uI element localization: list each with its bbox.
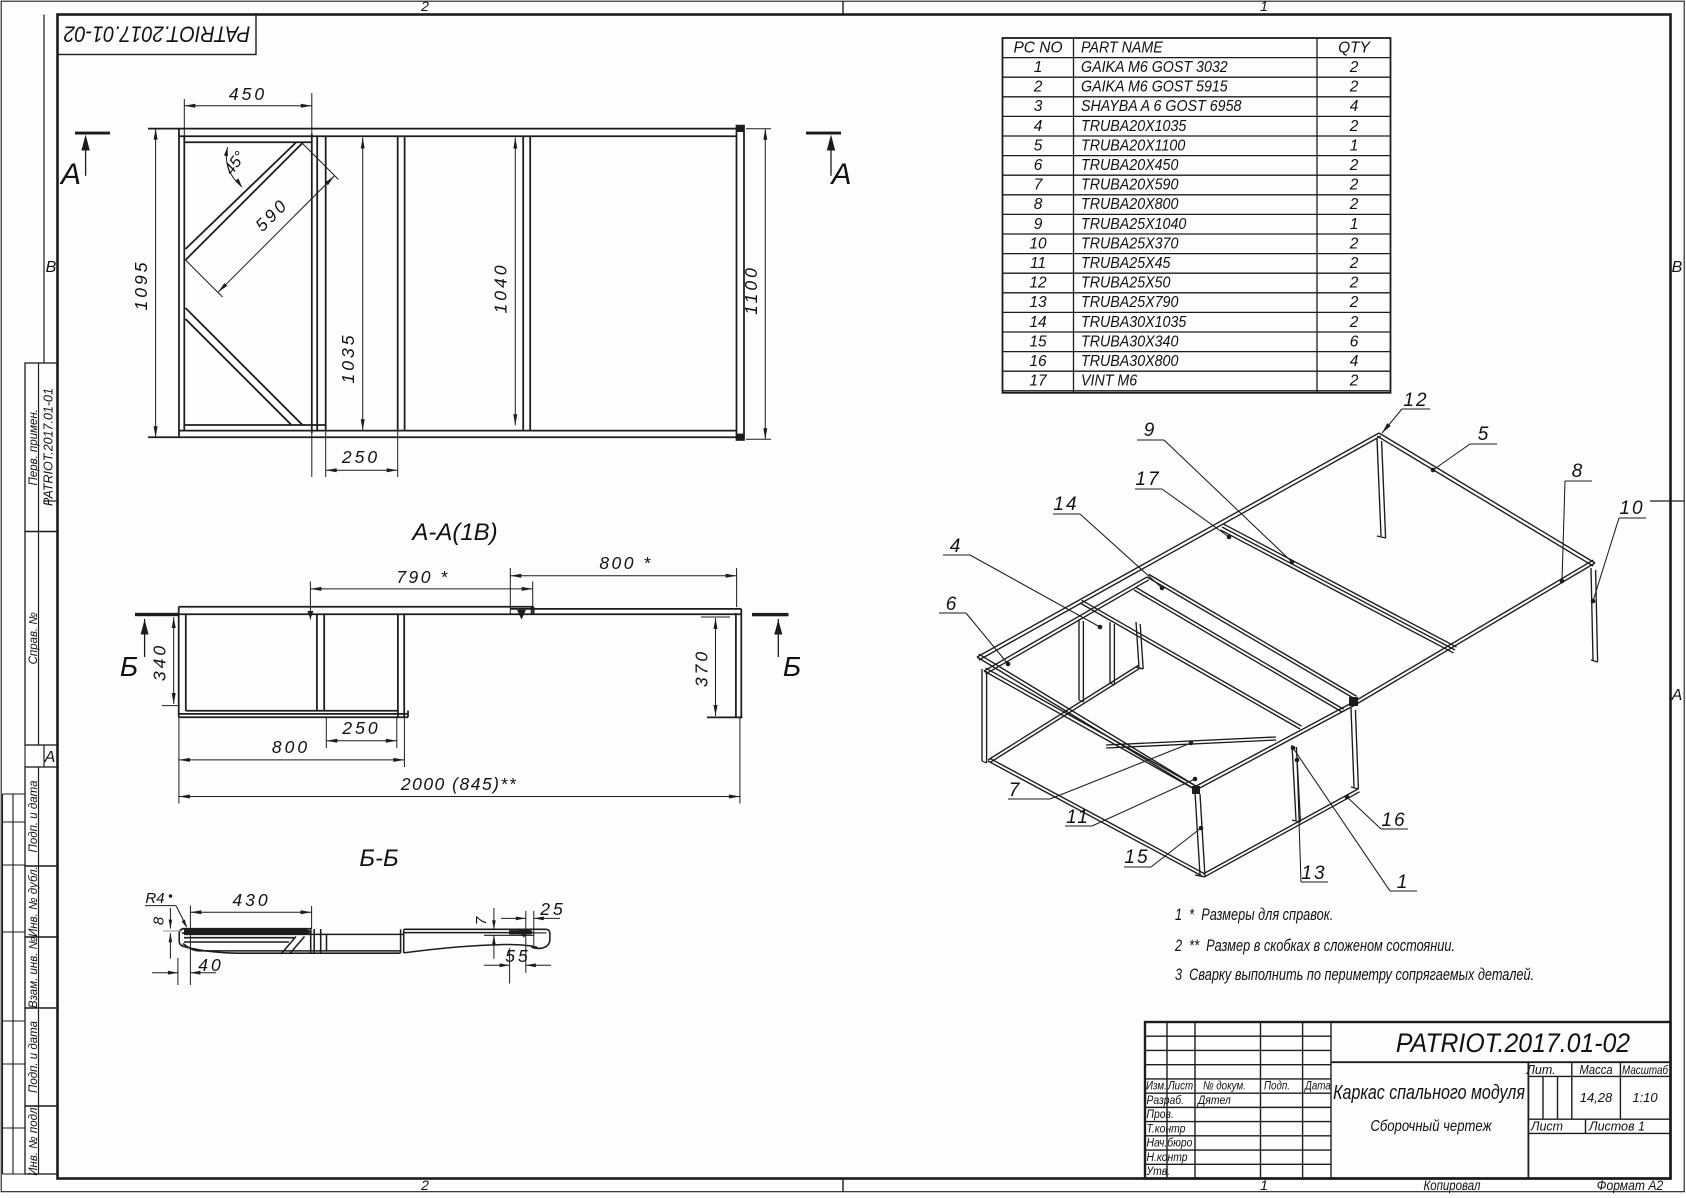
svg-text:2: 2 — [1033, 79, 1043, 96]
svg-text:2: 2 — [1349, 235, 1359, 252]
svg-text:800: 800 — [272, 737, 310, 757]
svg-text:12: 12 — [1403, 390, 1428, 411]
svg-text:PATRIOT.2017.01-01: PATRIOT.2017.01-01 — [42, 388, 56, 506]
svg-text:TRUBA25X370: TRUBA25X370 — [1081, 236, 1179, 253]
svg-text:A: A — [59, 158, 81, 191]
svg-text:6: 6 — [1034, 157, 1043, 174]
svg-text:40: 40 — [198, 955, 223, 975]
svg-text:TRUBA25X45: TRUBA25X45 — [1081, 256, 1171, 273]
svg-text:Лит.: Лит. — [1525, 1063, 1555, 1077]
svg-text:1: 1 — [1034, 59, 1043, 76]
svg-text:7: 7 — [1009, 780, 1022, 801]
svg-text:4: 4 — [1350, 98, 1359, 115]
svg-text:Формат А2: Формат А2 — [1597, 1177, 1663, 1193]
svg-text:A: A — [1671, 687, 1683, 704]
svg-text:Нач.бюро: Нач.бюро — [1147, 1137, 1193, 1150]
svg-text:TRUBA25X1040: TRUBA25X1040 — [1081, 216, 1187, 233]
svg-text:13: 13 — [1301, 863, 1326, 884]
svg-text:790 *: 790 * — [396, 567, 449, 587]
svg-text:PART NAME: PART NAME — [1081, 40, 1164, 57]
svg-text:Справ. №: Справ. № — [28, 612, 40, 665]
svg-text:TRUBA30X1035: TRUBA30X1035 — [1081, 314, 1187, 331]
svg-text:Сборочный чертеж: Сборочный чертеж — [1370, 1118, 1492, 1135]
svg-text:9: 9 — [1034, 216, 1043, 233]
svg-text:Б: Б — [120, 651, 138, 682]
svg-text:2000 (845)**: 2000 (845)** — [400, 774, 517, 794]
svg-text:11: 11 — [1066, 807, 1090, 828]
svg-text:2: 2 — [1349, 255, 1359, 272]
svg-text:8: 8 — [151, 916, 168, 925]
svg-text:Листов 1: Листов 1 — [1588, 1120, 1645, 1134]
svg-text:1095: 1095 — [131, 260, 151, 311]
svg-text:2: 2 — [1349, 275, 1359, 292]
svg-text:25: 25 — [539, 899, 565, 919]
svg-text:Взам. инв. №: Взам. инв. № — [28, 936, 40, 1008]
svg-text:17: 17 — [1135, 469, 1160, 490]
svg-text:4: 4 — [950, 536, 963, 557]
svg-text:GAIKA M6 GOST 5915: GAIKA M6 GOST 5915 — [1081, 79, 1228, 96]
svg-text:A-A(1B): A-A(1B) — [410, 519, 497, 546]
svg-text:№ докум.: № докум. — [1203, 1080, 1246, 1093]
svg-text:Подп. и дата: Подп. и дата — [28, 781, 40, 853]
svg-text:Б-Б: Б-Б — [359, 845, 398, 872]
svg-text:2: 2 — [1349, 59, 1359, 76]
svg-text:6: 6 — [946, 594, 959, 615]
svg-text:GAIKA M6 GOST 3032: GAIKA M6 GOST 3032 — [1081, 60, 1228, 77]
svg-text:2: 2 — [1349, 177, 1359, 194]
svg-text:2: 2 — [1349, 373, 1359, 390]
svg-text:2: 2 — [420, 1177, 429, 1193]
svg-text:14,28: 14,28 — [1580, 1090, 1613, 1105]
svg-text:5: 5 — [1478, 424, 1491, 445]
svg-text:PATRIOT.2017.01-02: PATRIOT.2017.01-02 — [1396, 1029, 1631, 1058]
svg-text:Лист: Лист — [1167, 1080, 1193, 1093]
svg-text:Подп.: Подп. — [1264, 1080, 1290, 1093]
svg-text:13: 13 — [1029, 294, 1047, 311]
svg-text:A: A — [829, 158, 851, 191]
svg-text:10: 10 — [1029, 235, 1047, 252]
svg-text:TRUBA25X50: TRUBA25X50 — [1081, 275, 1171, 292]
svg-text:Пров.: Пров. — [1147, 1108, 1174, 1121]
svg-text:7: 7 — [473, 916, 490, 925]
svg-text:340: 340 — [150, 643, 170, 681]
svg-text:2: 2 — [1349, 157, 1359, 174]
svg-text:55: 55 — [505, 946, 530, 966]
svg-text:11: 11 — [1030, 255, 1046, 272]
svg-text:250: 250 — [341, 447, 380, 467]
svg-text:1 * Размеры для справок.: 1 * Размеры для справок. — [1175, 905, 1333, 924]
svg-text:Каркас спального модуля: Каркас спального модуля — [1333, 1081, 1525, 1103]
svg-text:Т.контр: Т.контр — [1147, 1123, 1186, 1136]
svg-text:VINT M6: VINT M6 — [1081, 373, 1138, 390]
svg-text:800 *: 800 * — [599, 553, 652, 573]
svg-text:Н.контр: Н.контр — [1147, 1151, 1188, 1164]
svg-text:2: 2 — [420, 0, 429, 14]
svg-text:Б: Б — [783, 651, 801, 682]
svg-text:430: 430 — [232, 890, 270, 910]
svg-text:17: 17 — [1029, 373, 1048, 390]
svg-text:3 Сварку выполнить по перимет: 3 Сварку выполнить по периметру сопрягае… — [1175, 965, 1534, 984]
svg-text:PATRIOT.2017.01-02: PATRIOT.2017.01-02 — [63, 21, 250, 45]
svg-text:B: B — [1672, 259, 1683, 276]
svg-text:TRUBA20X590: TRUBA20X590 — [1081, 177, 1179, 194]
svg-text:Инв. № подл.: Инв. № подл. — [28, 1104, 40, 1175]
svg-text:14: 14 — [1029, 314, 1047, 331]
svg-text:Изм.: Изм. — [1146, 1080, 1167, 1093]
svg-text:16: 16 — [1029, 353, 1047, 370]
svg-text:1: 1 — [1397, 872, 1410, 893]
svg-text:1: 1 — [1350, 137, 1359, 154]
svg-text:Лист: Лист — [1530, 1120, 1563, 1134]
svg-text:8: 8 — [1572, 461, 1585, 482]
svg-text:SHAYBA A 6 GOST 6958: SHAYBA A 6 GOST 6958 — [1081, 99, 1242, 116]
svg-text:1100: 1100 — [741, 265, 761, 315]
svg-text:4: 4 — [1350, 353, 1359, 370]
svg-text:3: 3 — [1034, 98, 1043, 115]
svg-text:1: 1 — [1260, 0, 1268, 14]
svg-text:4: 4 — [1034, 118, 1043, 135]
svg-text:9: 9 — [1144, 420, 1157, 441]
svg-text:Подп. и дата: Подп. и дата — [28, 1021, 40, 1093]
svg-text:2: 2 — [1349, 118, 1359, 135]
svg-text:Утв.: Утв. — [1146, 1165, 1170, 1178]
svg-text:8: 8 — [1034, 196, 1043, 213]
svg-text:TRUBA20X800: TRUBA20X800 — [1081, 197, 1179, 214]
svg-text:Дятел: Дятел — [1196, 1094, 1231, 1107]
svg-text:2: 2 — [1349, 196, 1359, 213]
svg-text:R4: R4 — [145, 890, 164, 907]
svg-text:TRUBA30X800: TRUBA30X800 — [1081, 354, 1179, 371]
svg-text:Масса: Масса — [1579, 1062, 1613, 1077]
svg-text:10: 10 — [1619, 498, 1644, 519]
svg-text:1035: 1035 — [338, 333, 358, 384]
svg-text:250: 250 — [341, 718, 380, 738]
svg-text:1040: 1040 — [491, 263, 511, 314]
svg-text:12: 12 — [1029, 275, 1047, 292]
svg-text:Дата: Дата — [1303, 1080, 1330, 1093]
svg-text:Копировал: Копировал — [1423, 1178, 1480, 1193]
svg-text:14: 14 — [1053, 494, 1078, 515]
svg-text:A: A — [44, 749, 56, 766]
svg-text:2 ** Размер в скобках в слож: 2 ** Размер в скобках в сложеном состоян… — [1174, 936, 1455, 955]
svg-text:1: 1 — [1350, 216, 1359, 233]
svg-text:1:10: 1:10 — [1632, 1090, 1658, 1105]
svg-text:TRUBA20X1100: TRUBA20X1100 — [1081, 138, 1186, 155]
svg-text:7: 7 — [1034, 177, 1044, 194]
svg-text:TRUBA25X790: TRUBA25X790 — [1081, 295, 1179, 312]
svg-text:16: 16 — [1381, 810, 1406, 831]
svg-text:2: 2 — [1349, 294, 1359, 311]
svg-text:15: 15 — [1029, 333, 1047, 350]
svg-text:TRUBA20X1035: TRUBA20X1035 — [1081, 118, 1187, 135]
svg-text:QTY: QTY — [1338, 40, 1372, 57]
svg-text:15: 15 — [1124, 847, 1149, 868]
svg-text:370: 370 — [692, 649, 712, 687]
svg-text:TRUBA20X450: TRUBA20X450 — [1081, 158, 1179, 175]
svg-text:Разраб.: Разраб. — [1147, 1094, 1184, 1107]
svg-text:2: 2 — [1349, 314, 1359, 331]
svg-text:Инв. № дубл.: Инв. № дубл. — [28, 866, 40, 937]
svg-text:B: B — [46, 259, 57, 276]
svg-text:Масштаб: Масштаб — [1622, 1064, 1669, 1077]
svg-text:Перв. примен.: Перв. примен. — [28, 409, 40, 485]
svg-text:450: 450 — [229, 84, 267, 104]
svg-text:5: 5 — [1034, 137, 1043, 154]
svg-text:2: 2 — [1349, 79, 1359, 96]
svg-text:TRUBA30X340: TRUBA30X340 — [1081, 334, 1179, 351]
svg-text:6: 6 — [1350, 333, 1359, 350]
svg-text:PC NO: PC NO — [1013, 40, 1062, 57]
